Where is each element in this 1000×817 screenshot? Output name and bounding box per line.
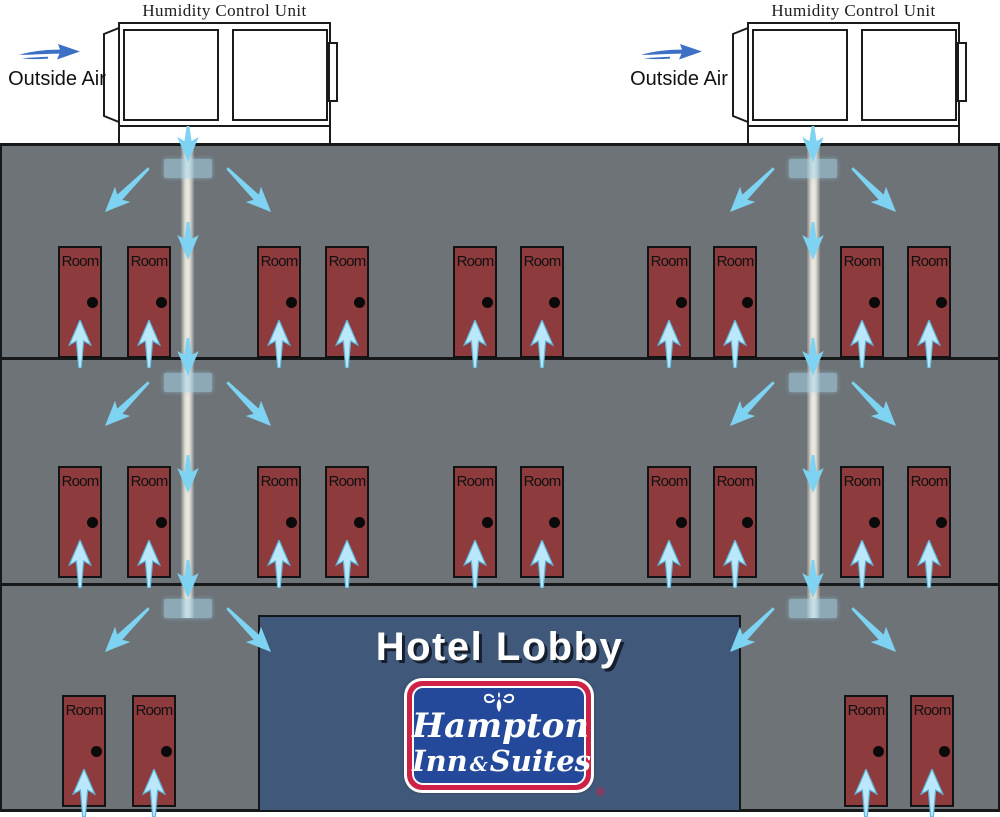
airflow-arrow-down-icon — [801, 126, 825, 162]
room-door-label: Room — [327, 253, 367, 270]
door-knob-icon — [936, 297, 947, 308]
room-inflow-arrow-icon — [137, 540, 161, 588]
door-knob-icon — [286, 517, 297, 528]
unit-panel-left — [752, 29, 848, 121]
unit-cabinet — [118, 22, 331, 127]
room-door-label: Room — [259, 253, 299, 270]
door-knob-icon — [482, 297, 493, 308]
room-inflow-arrow-icon — [530, 320, 554, 368]
door-knob-icon — [482, 517, 493, 528]
room-door-label: Room — [842, 253, 882, 270]
outside-air-label: Outside Air — [624, 68, 734, 91]
outside-air-label: Outside Air — [2, 68, 112, 91]
logo-blue-field: Hampton Inn&Suites — [412, 686, 586, 785]
room-door-label: Room — [327, 473, 367, 490]
room-door-label: Room — [259, 473, 299, 490]
door-knob-icon — [156, 517, 167, 528]
airflow-arrow-down-icon — [801, 560, 825, 598]
room-door-label: Room — [60, 473, 100, 490]
door-knob-icon — [742, 517, 753, 528]
room-inflow-arrow-icon — [267, 540, 291, 588]
door-knob-icon — [676, 517, 687, 528]
door-knob-icon — [869, 297, 880, 308]
room-door-label: Room — [60, 253, 100, 270]
door-knob-icon — [869, 517, 880, 528]
outside-air-arrow-icon — [18, 42, 82, 62]
airflow-arrow-down-icon — [801, 338, 825, 376]
room-inflow-arrow-icon — [850, 320, 874, 368]
door-knob-icon — [286, 297, 297, 308]
humidity-control-unit-left: Humidity Control Unit — [118, 0, 331, 143]
hampton-inn-suites-logo: Hampton Inn&Suites — [404, 678, 594, 793]
door-knob-icon — [549, 297, 560, 308]
logo-word-hampton: Hampton — [412, 708, 586, 744]
registered-trademark: ® — [596, 785, 605, 799]
room-inflow-arrow-icon — [657, 320, 681, 368]
room-inflow-arrow-icon — [723, 320, 747, 368]
room-door-label: Room — [842, 473, 882, 490]
room-door-label: Room — [455, 473, 495, 490]
airflow-arrow-down-icon — [801, 222, 825, 260]
room-door-label: Room — [846, 702, 886, 719]
room-inflow-arrow-icon — [917, 320, 941, 368]
room-inflow-arrow-icon — [530, 540, 554, 588]
unit-panel-right — [861, 29, 957, 121]
airflow-arrow-down-icon — [176, 126, 200, 162]
room-inflow-arrow-icon — [463, 320, 487, 368]
room-door-label: Room — [715, 473, 755, 490]
logo-word-suites: Suites — [490, 744, 591, 778]
room-door-label: Room — [649, 253, 689, 270]
room-door-label: Room — [912, 702, 952, 719]
unit-side-vent — [328, 42, 338, 102]
door-knob-icon — [354, 517, 365, 528]
room-inflow-arrow-icon — [723, 540, 747, 588]
room-door-label: Room — [64, 702, 104, 719]
room-door-label: Room — [715, 253, 755, 270]
room-inflow-arrow-icon — [657, 540, 681, 588]
door-knob-icon — [936, 517, 947, 528]
room-inflow-arrow-icon — [335, 540, 359, 588]
airflow-arrow-down-icon — [176, 455, 200, 493]
door-knob-icon — [354, 297, 365, 308]
room-door-label: Room — [649, 473, 689, 490]
airflow-arrow-down-icon — [176, 338, 200, 376]
lobby-title: Hotel Lobby — [260, 625, 739, 670]
airflow-arrow-down-icon — [176, 222, 200, 260]
room-door-label: Room — [522, 253, 562, 270]
room-door-label: Room — [909, 253, 949, 270]
door-knob-icon — [161, 746, 172, 757]
room-inflow-arrow-icon — [267, 320, 291, 368]
room-inflow-arrow-icon — [68, 540, 92, 588]
unit-side-vent — [957, 42, 967, 102]
door-knob-icon — [873, 746, 884, 757]
door-knob-icon — [156, 297, 167, 308]
room-inflow-arrow-icon — [137, 320, 161, 368]
logo-line-inn-suites: Inn&Suites — [412, 744, 586, 781]
humidity-control-unit-right: Humidity Control Unit — [747, 0, 960, 143]
room-inflow-arrow-icon — [850, 540, 874, 588]
room-inflow-arrow-icon — [72, 769, 96, 817]
door-knob-icon — [939, 746, 950, 757]
room-door-label: Room — [909, 473, 949, 490]
door-knob-icon — [87, 297, 98, 308]
room-inflow-arrow-icon — [920, 769, 944, 817]
door-knob-icon — [549, 517, 560, 528]
room-inflow-arrow-icon — [142, 769, 166, 817]
unit-stand — [747, 127, 960, 143]
room-door-label: Room — [129, 253, 169, 270]
room-door-label: Room — [455, 253, 495, 270]
door-knob-icon — [742, 297, 753, 308]
ceiling-diffuser-icon — [164, 599, 212, 618]
door-knob-icon — [87, 517, 98, 528]
room-inflow-arrow-icon — [68, 320, 92, 368]
room-door-label: Room — [134, 702, 174, 719]
outside-air-arrow-icon — [640, 42, 704, 62]
outside-air-callout-left: Outside Air — [2, 40, 112, 96]
logo-ampersand: & — [468, 752, 490, 776]
unit-panel-right — [232, 29, 328, 121]
room-inflow-arrow-icon — [335, 320, 359, 368]
unit-stand — [118, 127, 331, 143]
room-inflow-arrow-icon — [854, 769, 878, 817]
unit-panel-left — [123, 29, 219, 121]
hotel-lobby: Hotel Lobby Hampton Inn&Suites — [258, 615, 741, 812]
room-inflow-arrow-icon — [917, 540, 941, 588]
unit-label: Humidity Control Unit — [707, 1, 1000, 21]
logo-word-inn: Inn — [412, 744, 468, 778]
airflow-arrow-down-icon — [176, 560, 200, 598]
room-door-label: Room — [522, 473, 562, 490]
ceiling-diffuser-icon — [789, 599, 837, 618]
airflow-arrow-down-icon — [801, 455, 825, 493]
unit-cabinet — [747, 22, 960, 127]
unit-label: Humidity Control Unit — [78, 1, 371, 21]
hotel-humidity-airflow-diagram: Humidity Control Unit Humidity Control U… — [0, 0, 1000, 817]
room-door-label: Room — [129, 473, 169, 490]
door-knob-icon — [676, 297, 687, 308]
outside-air-callout-right: Outside Air — [624, 40, 734, 96]
door-knob-icon — [91, 746, 102, 757]
room-inflow-arrow-icon — [463, 540, 487, 588]
